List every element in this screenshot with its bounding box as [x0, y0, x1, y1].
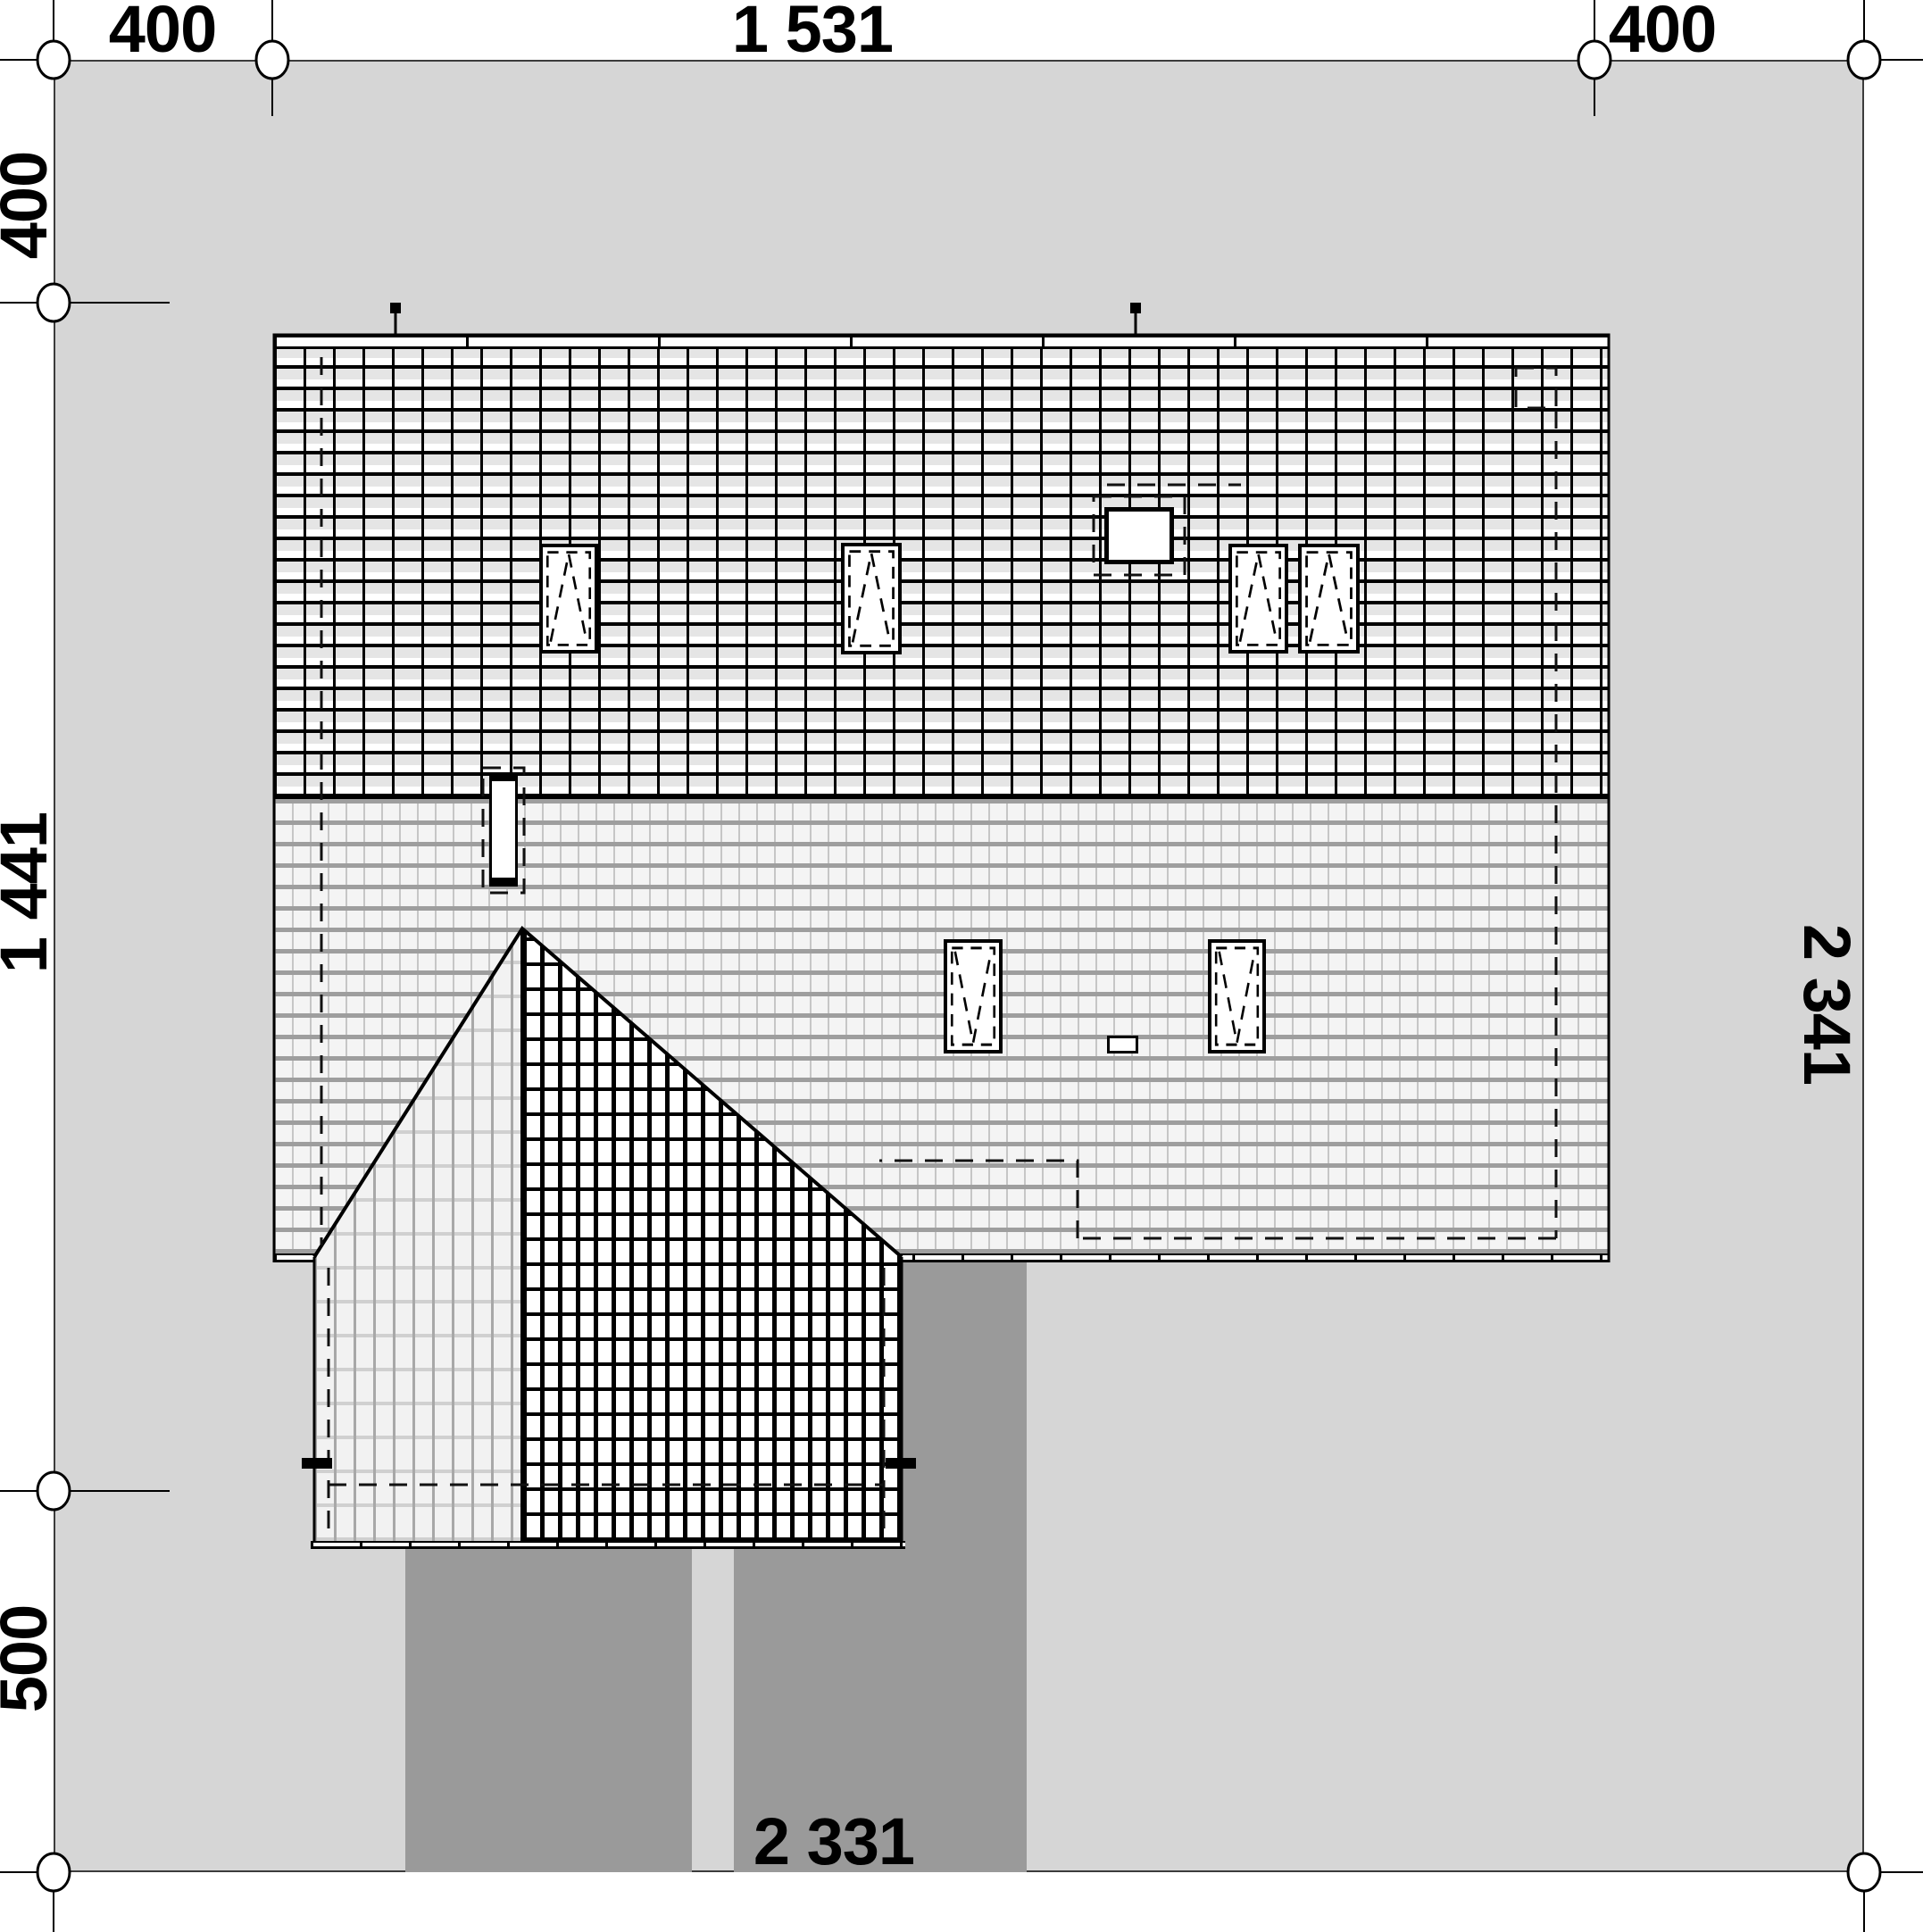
dimension-label-right: 2 341 — [1794, 924, 1860, 1085]
roof-vent — [1107, 1036, 1138, 1053]
dimension-label-top-middle: 1 531 — [732, 0, 893, 62]
walkway — [405, 1541, 692, 1872]
dimension-label-bottom: 2 331 — [753, 1809, 914, 1875]
dimension-label-top-left: 400 — [109, 0, 216, 62]
dimension-label-left-lower: 500 — [0, 1605, 57, 1712]
dimension-label-top-right: 400 — [1609, 0, 1716, 62]
chimney — [1104, 507, 1174, 564]
ridge-chimney — [489, 772, 518, 887]
roof-eave-top — [274, 335, 1609, 349]
roof-window — [944, 939, 1003, 1053]
site-plan: 400 1 531 400 400 1 441 500 2 341 2 331 — [0, 0, 1923, 1932]
roof-window — [1298, 544, 1360, 654]
roof-window — [841, 543, 902, 654]
roof-window — [1208, 939, 1266, 1053]
roof-upper-slope — [274, 349, 1609, 797]
dimension-label-left-middle: 1 441 — [0, 812, 57, 973]
roof-window — [1228, 544, 1288, 654]
roof-ridge — [274, 795, 1609, 799]
roof-window — [539, 544, 598, 654]
wing-eave — [311, 1541, 905, 1549]
dimension-label-left-upper: 400 — [0, 152, 57, 259]
